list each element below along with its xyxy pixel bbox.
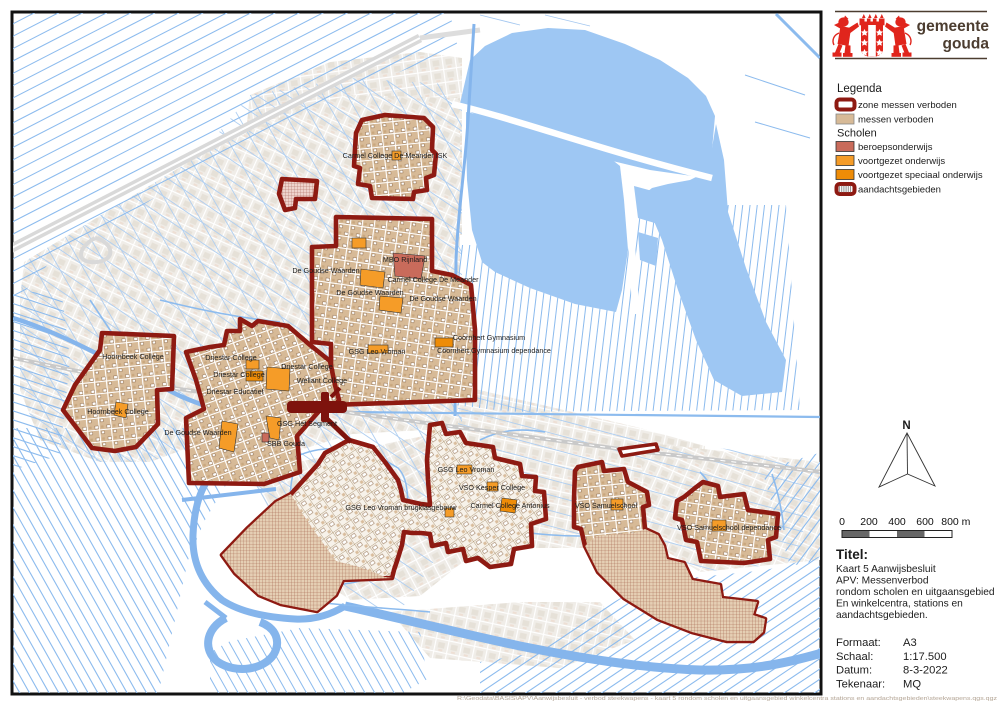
- svg-text:400: 400: [888, 516, 906, 528]
- svg-text:VSO Kesper College: VSO Kesper College: [459, 483, 525, 492]
- svg-text:Carmel College Antonius: Carmel College Antonius: [470, 501, 550, 510]
- svg-text:R:\Geodata\BASIS\APV\Aanwijsbe: R:\Geodata\BASIS\APV\Aanwijsbesluit - ve…: [457, 696, 998, 702]
- svg-text:De Goudse Waarden: De Goudse Waarden: [409, 294, 476, 303]
- svg-text:A3: A3: [903, 637, 917, 649]
- svg-text:800: 800: [941, 516, 959, 528]
- svg-text:Coornhert Gymnasium: Coornhert Gymnasium: [453, 333, 525, 342]
- svg-text:aandachtsgebieden.: aandachtsgebieden.: [836, 610, 928, 621]
- svg-text:Driestar College: Driestar College: [281, 362, 333, 371]
- svg-text:Wellant College: Wellant College: [297, 376, 347, 385]
- svg-text:Schaal:: Schaal:: [836, 651, 873, 663]
- svg-text:N: N: [902, 420, 910, 432]
- svg-text:gouda: gouda: [943, 36, 990, 53]
- svg-text:Driestar Educatief: Driestar Educatief: [206, 387, 263, 396]
- svg-text:8-3-2022: 8-3-2022: [903, 665, 948, 677]
- svg-text:voortgezet speciaal onderwijs: voortgezet speciaal onderwijs: [858, 170, 983, 181]
- svg-text:De Goudse Waarden: De Goudse Waarden: [164, 428, 231, 437]
- svg-text:GSG Leo Vroman brugklasgebouw: GSG Leo Vroman brugklasgebouw: [345, 503, 457, 512]
- svg-text:APV: Messenverbod: APV: Messenverbod: [836, 576, 929, 587]
- svg-text:Titel:: Titel:: [836, 547, 868, 562]
- svg-text:m: m: [962, 516, 971, 528]
- svg-text:Carmel College De Meander ISK: Carmel College De Meander ISK: [343, 151, 448, 160]
- svg-text:600: 600: [916, 516, 934, 528]
- svg-text:MQ: MQ: [903, 678, 921, 690]
- svg-text:SBB Gouda: SBB Gouda: [267, 439, 305, 448]
- svg-text:voortgezet onderwijs: voortgezet onderwijs: [858, 156, 945, 167]
- svg-text:Coornhert Gymnasium dependance: Coornhert Gymnasium dependance: [437, 346, 551, 355]
- svg-text:Legenda: Legenda: [837, 83, 882, 95]
- svg-text:VSO Samuelschool dependance: VSO Samuelschool dependance: [677, 523, 781, 532]
- svg-text:beroepsonderwijs: beroepsonderwijs: [858, 142, 933, 153]
- svg-text:Datum:: Datum:: [836, 665, 872, 677]
- svg-text:messen verboden: messen verboden: [858, 115, 934, 126]
- svg-text:Tekenaar:: Tekenaar:: [836, 678, 885, 690]
- svg-text:VSO Samuelschool: VSO Samuelschool: [575, 501, 638, 510]
- svg-text:Formaat:: Formaat:: [836, 637, 881, 649]
- svg-text:GSG Het Segment: GSG Het Segment: [277, 419, 337, 428]
- svg-text:En winkelcentra, stations en: En winkelcentra, stations en: [836, 599, 963, 610]
- svg-text:Hoornbeek College: Hoornbeek College: [102, 352, 164, 361]
- svg-text:Driestar College: Driestar College: [213, 370, 265, 379]
- svg-text:zone messen verboden: zone messen verboden: [858, 100, 957, 111]
- svg-text:rondom scholen en uitgaansgebi: rondom scholen en uitgaansgebied: [836, 587, 995, 598]
- svg-text:1:17.500: 1:17.500: [903, 651, 947, 663]
- svg-text:0: 0: [839, 516, 845, 528]
- svg-text:Driestar College: Driestar College: [205, 353, 257, 362]
- svg-text:De Goudse Waarden: De Goudse Waarden: [292, 266, 359, 275]
- svg-text:MBO Rijnland: MBO Rijnland: [383, 255, 427, 264]
- svg-text:gemeente: gemeente: [917, 18, 990, 35]
- svg-text:Hoornbeek College: Hoornbeek College: [87, 407, 149, 416]
- svg-text:Kaart 5 Aanwijsbesluit: Kaart 5 Aanwijsbesluit: [836, 564, 936, 575]
- svg-text:Scholen: Scholen: [837, 128, 877, 140]
- svg-text:GSG Leo Vroman: GSG Leo Vroman: [349, 347, 406, 356]
- svg-text:De Goudse Waarden: De Goudse Waarden: [336, 288, 403, 297]
- svg-text:200: 200: [860, 516, 878, 528]
- svg-text:Carmel College De Meander: Carmel College De Meander: [387, 275, 479, 284]
- svg-text:GSG Leo Vroman: GSG Leo Vroman: [438, 465, 495, 474]
- svg-text:aandachtsgebieden: aandachtsgebieden: [858, 185, 941, 196]
